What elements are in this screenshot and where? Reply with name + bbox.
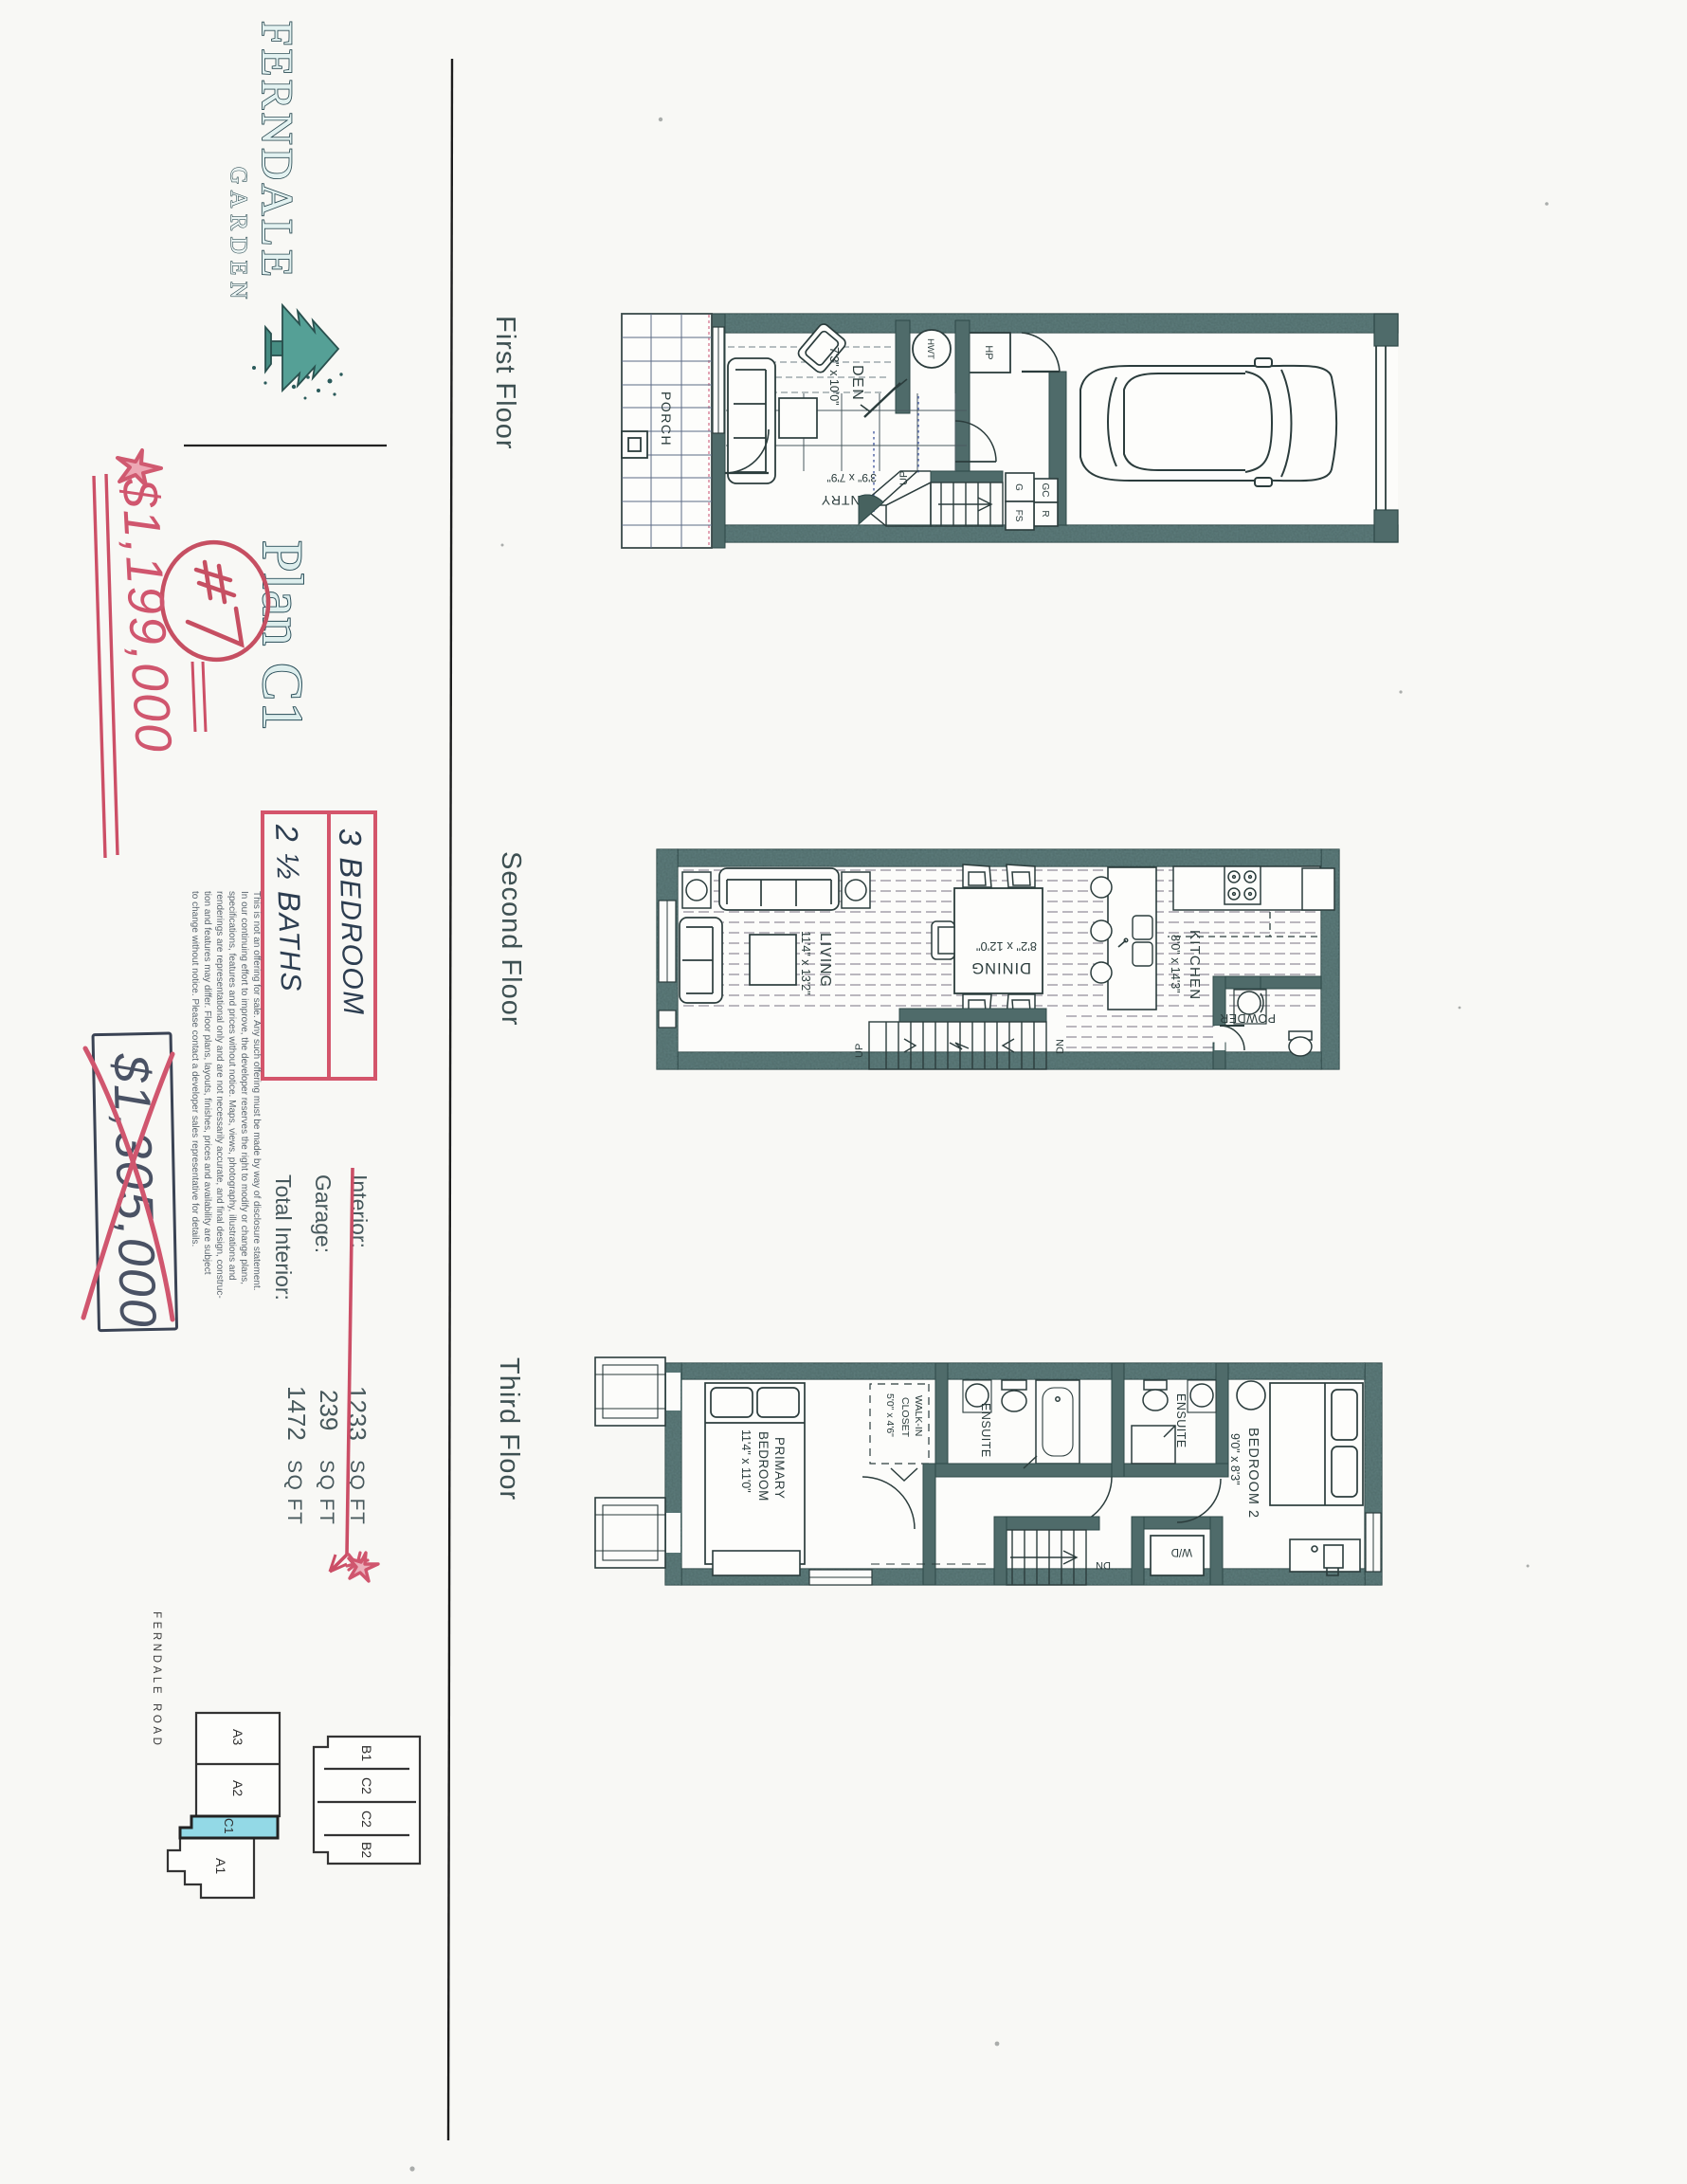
svg-text:1472: 1472 bbox=[282, 1386, 311, 1441]
svg-text:Total Interior:: Total Interior: bbox=[271, 1174, 296, 1301]
svg-text:C2: C2 bbox=[359, 1811, 374, 1828]
svg-text:renderings are representationa: renderings are representational only and… bbox=[214, 891, 225, 1299]
svg-text:ENSUITE: ENSUITE bbox=[979, 1403, 992, 1458]
svg-text:This is not an offering for sa: This is not an offering for sale. Any su… bbox=[251, 891, 262, 1291]
svg-text:BEDROOM 2: BEDROOM 2 bbox=[1245, 1428, 1261, 1519]
svg-text:KITCHEN: KITCHEN bbox=[1187, 930, 1203, 1000]
svg-text:DN: DN bbox=[1096, 1559, 1111, 1571]
svg-text:SQ FT: SQ FT bbox=[316, 1460, 337, 1525]
svg-text:specifications, features and p: specifications, features and prices with… bbox=[227, 891, 237, 1281]
svg-text:11'4" x 13'2": 11'4" x 13'2" bbox=[799, 931, 812, 995]
svg-text:Second Floor: Second Floor bbox=[496, 851, 526, 1027]
svg-text:FERNDALE: FERNDALE bbox=[252, 21, 301, 280]
svg-text:B2: B2 bbox=[359, 1842, 374, 1858]
svg-text:Third Floor: Third Floor bbox=[494, 1357, 524, 1501]
svg-text:A1: A1 bbox=[213, 1858, 228, 1874]
svg-text:POWDER: POWDER bbox=[1220, 1011, 1276, 1025]
svg-text:BEDROOM: BEDROOM bbox=[756, 1431, 771, 1501]
svg-text:B1: B1 bbox=[359, 1745, 374, 1761]
svg-text:3 BEDROOM: 3 BEDROOM bbox=[333, 828, 372, 1016]
svg-text:SQ FT: SQ FT bbox=[283, 1460, 305, 1525]
svg-text:Garage:: Garage: bbox=[311, 1174, 336, 1253]
svg-text:7'3" x 10'0": 7'3" x 10'0" bbox=[827, 347, 841, 406]
svg-text:W/D: W/D bbox=[1171, 1546, 1192, 1557]
svg-text:GC: GC bbox=[1040, 483, 1050, 498]
svg-text:8'0" x 14'3": 8'0" x 14'3" bbox=[1169, 935, 1182, 993]
svg-text:First Floor: First Floor bbox=[490, 316, 520, 450]
svg-text:239: 239 bbox=[315, 1390, 343, 1430]
svg-text:CLOSET: CLOSET bbox=[899, 1397, 911, 1438]
svg-text:WALK-IN: WALK-IN bbox=[913, 1395, 924, 1436]
svg-text:3'9" x 7'9": 3'9" x 7'9" bbox=[827, 471, 877, 484]
svg-text:PORCH: PORCH bbox=[659, 391, 674, 446]
svg-text:C2: C2 bbox=[359, 1777, 374, 1794]
svg-text:GARDEN: GARDEN bbox=[226, 167, 251, 305]
svg-text:A2: A2 bbox=[230, 1780, 245, 1796]
svg-text:2 ½ BATHS: 2 ½ BATHS bbox=[269, 823, 310, 993]
svg-text:In our continuing effort to im: In our continuing effort to improve, the… bbox=[239, 891, 249, 1284]
svg-text:HWT: HWT bbox=[925, 338, 935, 359]
svg-text:8'2" x 12'0": 8'2" x 12'0" bbox=[976, 939, 1037, 954]
svg-text:11'4" x 11'0": 11'4" x 11'0" bbox=[739, 1429, 753, 1493]
svg-text:G: G bbox=[1013, 483, 1024, 491]
svg-text:ENSUITE: ENSUITE bbox=[1174, 1393, 1188, 1448]
svg-text:HP: HP bbox=[983, 345, 994, 359]
svg-text:R: R bbox=[1040, 510, 1050, 517]
svg-text:to change without notice. Plea: to change without notice. Please contact… bbox=[190, 891, 200, 1247]
svg-text:LIVING: LIVING bbox=[817, 933, 833, 988]
svg-text:DEN: DEN bbox=[849, 365, 865, 401]
svg-text:DN: DN bbox=[1055, 1039, 1066, 1054]
svg-text:UP: UP bbox=[854, 1044, 865, 1058]
svg-text:tion and features may differ.: tion and features may differ. Floor plan… bbox=[202, 891, 212, 1275]
svg-text:DINING: DINING bbox=[970, 959, 1031, 976]
svg-text:C1: C1 bbox=[222, 1818, 236, 1834]
svg-text:A3: A3 bbox=[230, 1729, 245, 1745]
svg-text:FS: FS bbox=[1013, 510, 1024, 522]
svg-text:5'0" x 4'6": 5'0" x 4'6" bbox=[884, 1393, 896, 1437]
svg-text:FERNDALE ROAD: FERNDALE ROAD bbox=[151, 1611, 162, 1749]
svg-text:9'0" x 8'3": 9'0" x 8'3" bbox=[1228, 1433, 1242, 1485]
svg-text:PRIMARY: PRIMARY bbox=[772, 1437, 787, 1499]
